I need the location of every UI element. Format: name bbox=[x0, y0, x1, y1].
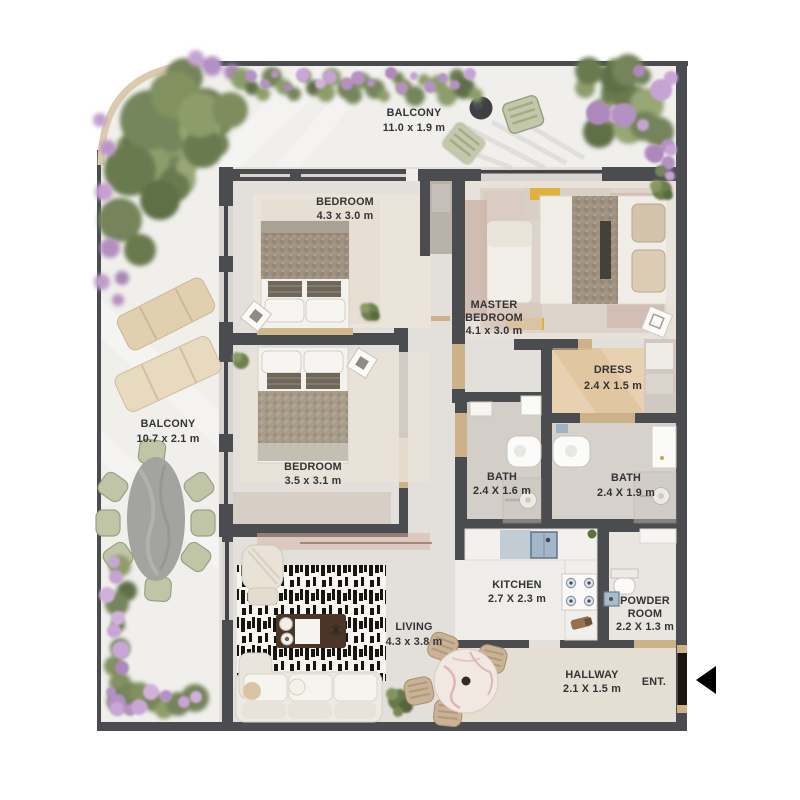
svg-text:BATH: BATH bbox=[611, 472, 641, 484]
svg-text:2.1 X 1.5 m: 2.1 X 1.5 m bbox=[563, 683, 621, 695]
svg-text:LIVING: LIVING bbox=[395, 621, 432, 633]
svg-text:BEDROOM: BEDROOM bbox=[284, 461, 342, 473]
svg-text:11.0 x 1.9 m: 11.0 x 1.9 m bbox=[383, 122, 445, 134]
svg-text:BATH: BATH bbox=[487, 471, 517, 483]
svg-text:2.2 X 1.3 m: 2.2 X 1.3 m bbox=[616, 621, 674, 633]
svg-text:HALLWAY: HALLWAY bbox=[565, 669, 619, 681]
svg-text:4.3 x 3.0 m: 4.3 x 3.0 m bbox=[317, 210, 374, 222]
svg-text:3.5 x 3.1 m: 3.5 x 3.1 m bbox=[285, 475, 342, 487]
svg-text:ENT.: ENT. bbox=[642, 676, 666, 688]
svg-text:BALCONY: BALCONY bbox=[141, 418, 196, 430]
svg-text:KITCHEN: KITCHEN bbox=[492, 579, 541, 591]
svg-text:ROOM: ROOM bbox=[628, 608, 662, 620]
svg-text:BEDROOM: BEDROOM bbox=[316, 196, 374, 208]
svg-text:BEDROOM: BEDROOM bbox=[465, 312, 523, 324]
svg-text:DRESS: DRESS bbox=[594, 364, 632, 376]
svg-text:4.1 x 3.0 m: 4.1 x 3.0 m bbox=[466, 325, 523, 337]
svg-text:MASTER: MASTER bbox=[471, 299, 518, 311]
svg-text:4.3 x 3.8 m: 4.3 x 3.8 m bbox=[386, 636, 443, 648]
svg-text:10.7 x 2.1 m: 10.7 x 2.1 m bbox=[136, 433, 199, 445]
svg-text:2.4 X 1.6 m: 2.4 X 1.6 m bbox=[473, 485, 531, 497]
svg-text:POWDER: POWDER bbox=[620, 595, 670, 607]
svg-text:2.7 X 2.3 m: 2.7 X 2.3 m bbox=[488, 593, 546, 605]
svg-text:2.4 X 1.5 m: 2.4 X 1.5 m bbox=[584, 380, 642, 392]
svg-text:2.4 X 1.9 m: 2.4 X 1.9 m bbox=[597, 487, 655, 499]
svg-text:BALCONY: BALCONY bbox=[387, 107, 442, 119]
